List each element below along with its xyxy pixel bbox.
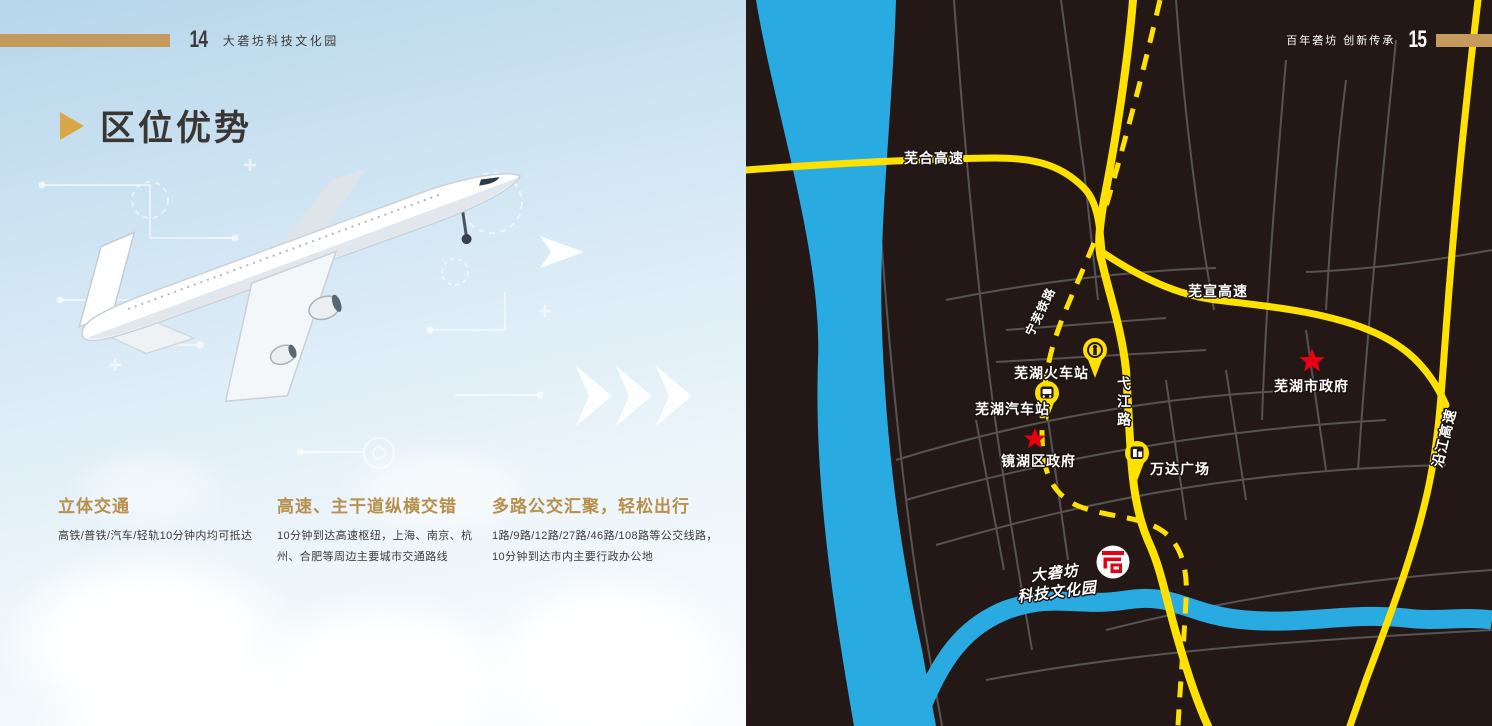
arrow-right-icon [540,236,584,268]
page-number: 15 [1409,26,1427,54]
map-label-wanda-plaza: 万达广场 [1150,459,1210,479]
left-page: 14 大砻坊科技文化园 区位优势 立体交通 高铁/普铁/汽车/轻轨10分钟内均可… [0,0,746,726]
feature-columns: 立体交通 高铁/普铁/汽车/轻轨10分钟内均可抵达 高速、主干道纵横交错 10分… [58,492,744,569]
column-body: 高铁/普铁/汽车/轻轨10分钟内均可抵达 [58,526,265,547]
left-page-header: 14 大砻坊科技文化园 [0,28,339,52]
feature-column-highway: 高速、主干道纵横交错 10分钟到达高速枢纽，上海、南京、杭州、合肥等周边主要城市… [277,492,490,569]
section-title-block: 区位优势 [60,100,252,151]
triangle-bullet-icon [60,112,84,140]
map-label-wuhu-city-gov: 芜湖市政府 [1274,376,1349,396]
map-label-yijiang-road: 弋江路 [1114,376,1134,430]
gold-bar [1436,34,1492,47]
column-heading: 立体交通 [58,492,275,517]
column-heading: 高速、主干道纵横交错 [277,492,490,517]
map-label-wuhe-expressway: 芜合高速 [904,148,964,168]
feature-column-transport: 立体交通 高铁/普铁/汽车/轻轨10分钟内均可抵达 [58,492,275,569]
map-label-train-station: 芜湖火车站 [1014,363,1089,383]
brochure-spread: 14 大砻坊科技文化园 区位优势 立体交通 高铁/普铁/汽车/轻轨10分钟内均可… [0,0,1492,726]
chevron-arrows-icon [576,366,692,426]
building-icon [1131,447,1144,460]
column-heading: 多路公交汇聚，轻松出行 [492,492,742,517]
bus-icon [1041,387,1054,399]
feature-column-bus: 多路公交汇聚，轻松出行 1路/9路/12路/27路/46路/108路等公交线路，… [492,492,742,569]
right-page-map: 芜合高速 芜宣高速 沿江高速 宁芜铁路 弋江路 芜湖火车站 芜湖汽车站 镜湖区政… [746,0,1492,726]
map-label-wuxuan-expressway: 芜宣高速 [1188,281,1248,301]
city-map [746,0,1492,726]
page-number: 14 [189,26,207,54]
right-page-header: 百年砻坊 创新传承 15 [1286,28,1492,52]
map-label-jinghu-district-gov: 镜湖区政府 [1001,451,1076,471]
airplane [55,102,563,455]
page-title: 区位优势 [100,100,252,151]
column-body: 1路/9路/12路/27路/46路/108路等公交线路，10分钟到达市内主要行政… [492,526,724,569]
gold-bar [0,34,170,47]
map-label-bus-station: 芜湖汽车站 [975,399,1050,419]
header-brand-title: 大砻坊科技文化园 [223,32,339,49]
park-logo [1097,546,1130,579]
header-tagline: 百年砻坊 创新传承 [1286,32,1395,48]
column-body: 10分钟到达高速枢纽，上海、南京、杭州、合肥等周边主要城市交通路线 [277,526,484,569]
